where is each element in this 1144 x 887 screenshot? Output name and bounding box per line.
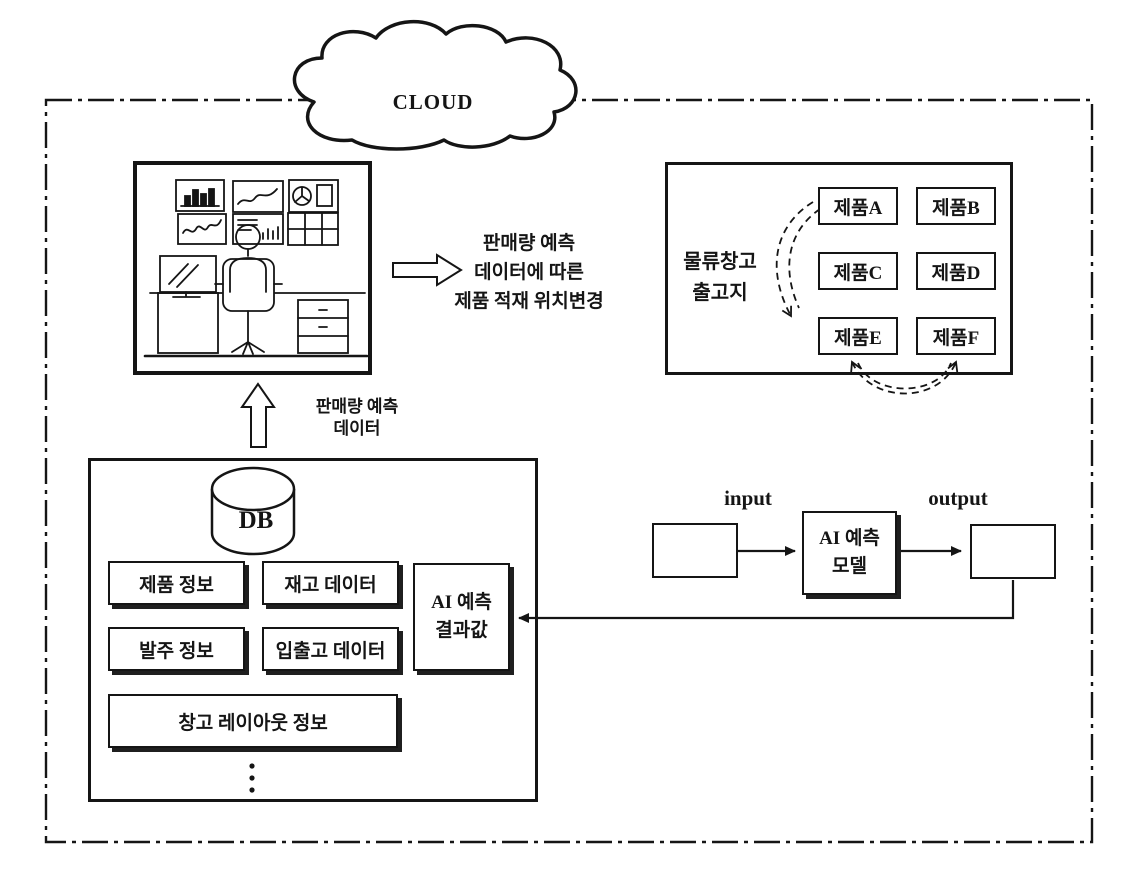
db-item-inout-data: 입출고 데이터 <box>262 627 399 671</box>
product-box-a: 제품A <box>818 187 898 225</box>
input-box <box>652 523 738 578</box>
workstation-panel <box>133 161 372 375</box>
ai-result-line2: 결과값 <box>435 617 487 645</box>
db-item-stock-data: 재고 데이터 <box>262 561 399 605</box>
warehouse-label-line2: 출고지 <box>666 278 774 309</box>
product-box-f: 제품F <box>916 317 996 355</box>
ai-model-line1: AI 예측 <box>819 525 880 553</box>
db-label: DB <box>226 507 286 535</box>
flow-arrows <box>519 551 1013 618</box>
ai-model-line2: 모델 <box>832 553 867 581</box>
sales-data-label-line1: 판매량 예측 <box>296 396 418 418</box>
relocation-note-line1: 판매량 예측 <box>418 229 640 258</box>
figure-canvas: CLOUD 판매량 예측 데이터에 따른 제품 적재 위치변경 물류창고 출고지… <box>0 0 1144 887</box>
up-block-arrow-icon <box>242 384 274 447</box>
cloud-label: CLOUD <box>373 90 493 115</box>
relocation-note-line2: 데이터에 따른 <box>418 258 640 287</box>
product-box-d: 제품D <box>916 252 996 290</box>
ai-model-box: AI 예측 모델 <box>802 511 897 595</box>
warehouse-label: 물류창고 출고지 <box>666 247 774 309</box>
input-label: input <box>703 486 793 511</box>
product-box-e: 제품E <box>818 317 898 355</box>
output-label: output <box>913 486 1003 511</box>
db-item-product-info: 제품 정보 <box>108 561 245 605</box>
ai-result-line1: AI 예측 <box>431 589 492 617</box>
relocation-note-line3: 제품 적재 위치변경 <box>418 287 640 316</box>
product-box-b: 제품B <box>916 187 996 225</box>
warehouse-label-line1: 물류창고 <box>666 247 774 278</box>
product-box-c: 제품C <box>818 252 898 290</box>
db-item-layout-info: 창고 레이아웃 정보 <box>108 694 398 748</box>
sales-data-label: 판매량 예측 데이터 <box>296 396 418 440</box>
relocation-note: 판매량 예측 데이터에 따른 제품 적재 위치변경 <box>418 229 640 316</box>
output-to-result-arrow <box>519 580 1013 618</box>
sales-data-label-line2: 데이터 <box>296 418 418 440</box>
ai-result-box: AI 예측 결과값 <box>413 563 510 671</box>
db-item-order-info: 발주 정보 <box>108 627 245 671</box>
cloud-shape <box>294 22 575 149</box>
output-box <box>970 524 1056 579</box>
